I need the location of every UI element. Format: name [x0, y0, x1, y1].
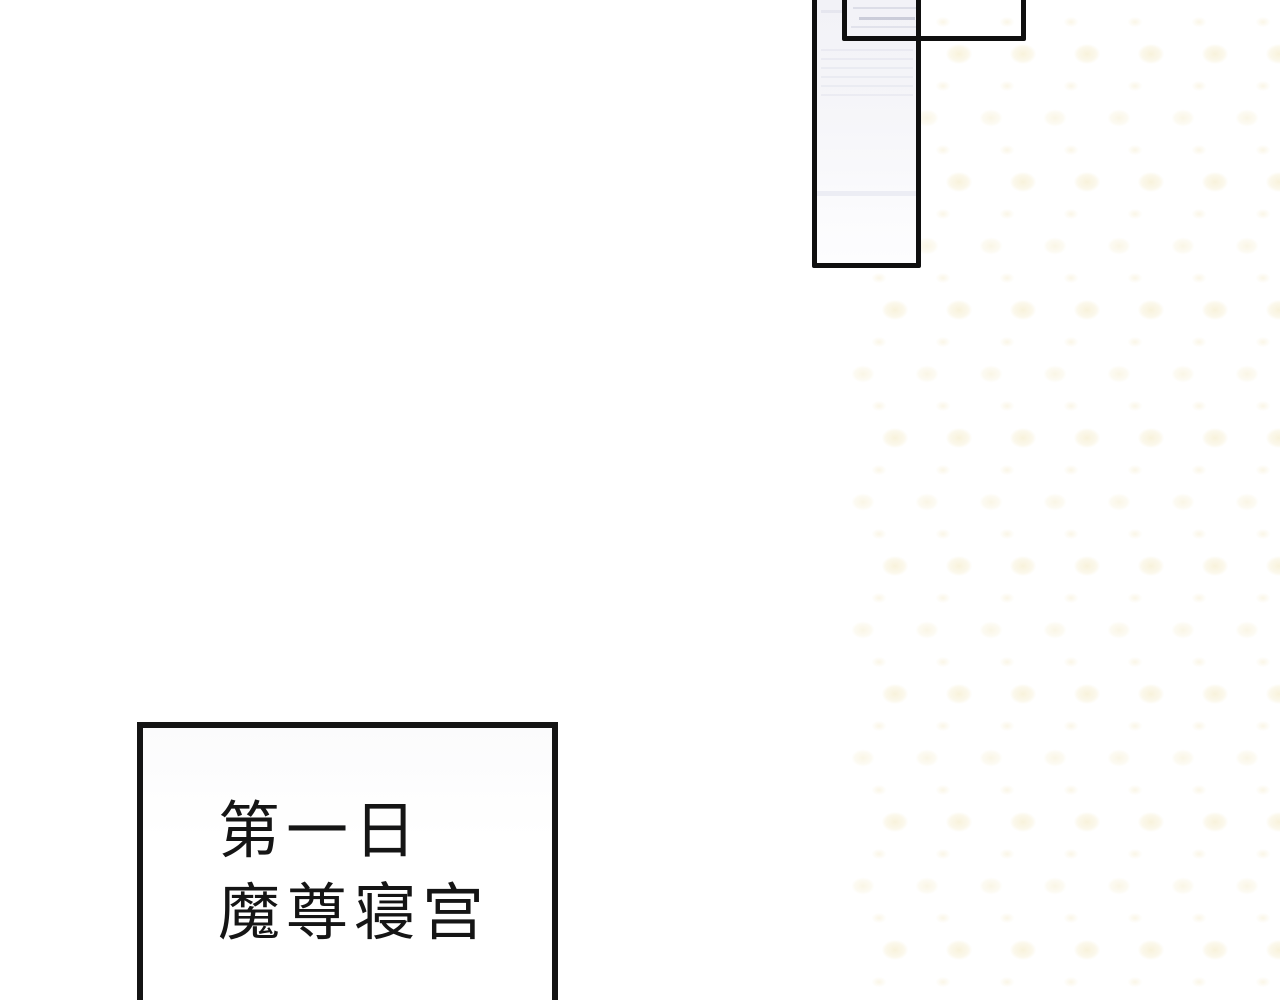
caption-line-1: 第一日 — [218, 791, 552, 873]
chapter-caption-text: 第一日 魔尊寝宫 — [143, 728, 552, 955]
chapter-caption-box: 第一日 魔尊寝宫 — [137, 722, 558, 1000]
comic-page: 第一日 魔尊寝宫 — [0, 0, 1280, 1000]
caption-line-2: 魔尊寝宫 — [218, 873, 552, 955]
panel-horizontal-cutoff — [842, 0, 1026, 41]
